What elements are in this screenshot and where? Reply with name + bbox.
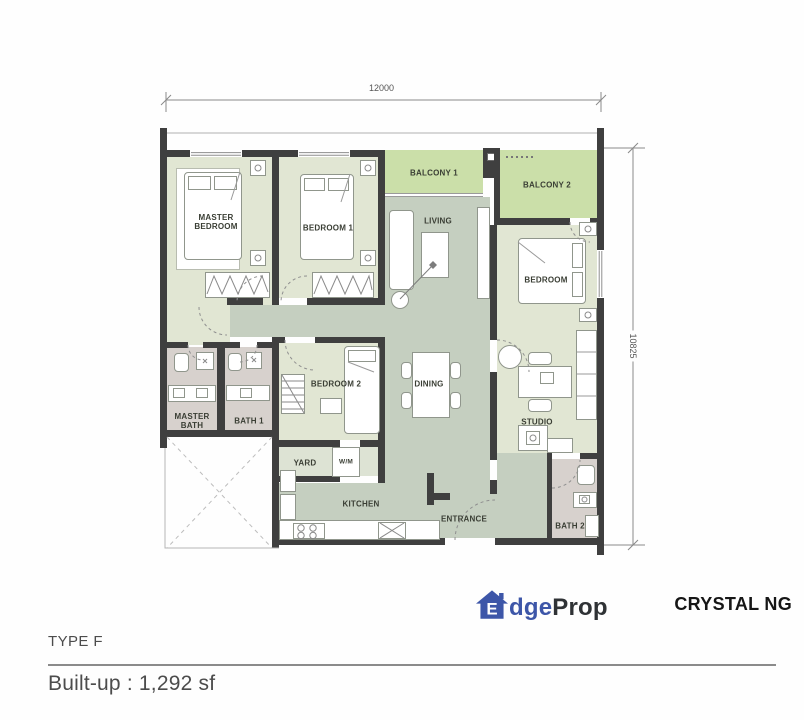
logo-text-prop: Prop xyxy=(552,596,607,620)
wall-yard-top-b xyxy=(360,440,385,447)
wall-bedroom2-left xyxy=(272,337,279,548)
wall-corridor-lower xyxy=(490,372,497,460)
label-yard: YARD xyxy=(285,458,325,467)
wall-bed1-living xyxy=(378,150,385,305)
label-balcony-1: BALCONY 1 xyxy=(394,168,474,177)
wall-bath-top-1 xyxy=(162,342,188,348)
kitchen-cabinet xyxy=(280,470,296,492)
wall-kitchen-stub-h xyxy=(434,493,450,500)
toilet-bath1 xyxy=(228,353,242,371)
wall-outer-right xyxy=(597,128,604,555)
edgeprop-logo-icon: E xyxy=(476,590,508,620)
wall-master-bottom xyxy=(227,298,263,305)
studio-chair xyxy=(528,399,552,412)
logo-text-edge: dge xyxy=(509,596,552,620)
room-entry-corridor xyxy=(497,453,547,538)
nightstand xyxy=(250,160,266,176)
wardrobe-bedroom1 xyxy=(312,272,374,298)
wall-bath-divider xyxy=(217,347,225,435)
shower-bath1 xyxy=(246,352,262,369)
dining-chair xyxy=(401,362,412,379)
label-bath-1: BATH 1 xyxy=(229,416,269,425)
pillow xyxy=(304,178,325,191)
pillow xyxy=(188,176,211,190)
studio-closet xyxy=(576,330,597,420)
dining-chair xyxy=(450,362,461,379)
basin xyxy=(579,495,590,504)
agent-name: CRYSTAL NG xyxy=(620,594,792,615)
stove xyxy=(293,523,325,539)
nightstand xyxy=(579,222,597,236)
studio-monitor xyxy=(540,372,554,384)
fridge xyxy=(280,494,296,520)
wall-bath-bottom xyxy=(162,430,272,437)
coffee-table xyxy=(421,232,449,278)
wall-bedroom2-top-a xyxy=(279,337,285,343)
wall-yard-top-a xyxy=(279,440,340,447)
edgeprop-logo: E dgeProp xyxy=(476,590,608,620)
dining-chair xyxy=(450,392,461,409)
wall-bath-top-3 xyxy=(257,342,272,348)
toilet-master-bath xyxy=(174,353,189,372)
wall-outer-left xyxy=(160,128,167,448)
basin xyxy=(240,388,252,398)
window-master xyxy=(190,150,242,157)
pillow xyxy=(348,350,376,362)
dimension-height: 10825 xyxy=(628,330,638,361)
dining-chair xyxy=(401,392,412,409)
label-living: LIVING xyxy=(408,216,468,225)
pillow xyxy=(214,176,237,190)
label-master-bath: MASTER BATH xyxy=(170,412,214,430)
wardrobe-master xyxy=(205,272,270,298)
label-kitchen: KITCHEN xyxy=(331,499,391,508)
toilet-bath2 xyxy=(577,465,595,485)
label-bath-2: BATH 2 xyxy=(550,521,590,530)
table-bedroom2 xyxy=(320,398,342,414)
wall-corridor-upper xyxy=(490,225,497,340)
kitchen-sink xyxy=(378,522,406,539)
room-hallway xyxy=(230,305,385,337)
pillow xyxy=(328,178,349,191)
footer-divider xyxy=(48,664,776,666)
wall-master-bed1-divider xyxy=(272,157,279,305)
wall-kitchen-stub-v xyxy=(427,473,434,505)
dimension-width: 12000 xyxy=(366,83,397,93)
nightstand xyxy=(360,160,376,176)
label-washing-machine: W/M xyxy=(332,458,360,465)
nightstand xyxy=(579,308,597,322)
label-balcony-2: BALCONY 2 xyxy=(507,180,587,189)
wall-balcony2-bottom xyxy=(494,218,570,225)
wall-bath2-top-b xyxy=(580,453,604,459)
nightstand xyxy=(360,250,376,266)
label-bedroom-1: BEDROOM 1 xyxy=(288,223,368,232)
label-bedroom-2: BEDROOM 2 xyxy=(296,379,376,388)
studio-chair xyxy=(528,352,552,365)
side-table-round xyxy=(391,291,409,309)
wall-bed1-bottom xyxy=(307,298,385,305)
label-master-bedroom: MASTER BEDROOM xyxy=(184,213,248,231)
nightstand xyxy=(250,250,266,266)
counter-studio xyxy=(547,438,573,453)
floorplan-page: MASTER BEDROOM BEDROOM 1 BALCONY 1 BALCO… xyxy=(0,0,804,720)
basin xyxy=(196,388,208,398)
label-entrance: ENTRANCE xyxy=(429,514,499,523)
wall-bedroom2-top-b xyxy=(315,337,385,343)
shower-master-bath xyxy=(196,352,214,370)
pillow xyxy=(572,243,583,268)
window-bedroom-right xyxy=(597,250,604,298)
label-bedroom: BEDROOM xyxy=(511,275,581,284)
wall-entry-stub xyxy=(490,480,497,494)
room-master-passage xyxy=(167,305,230,345)
wall-bath2-top-a xyxy=(547,453,552,459)
label-dining: DINING xyxy=(399,379,459,388)
wall-balcony2-left xyxy=(494,150,500,225)
builtup-label: Built-up : 1,292 sf xyxy=(48,672,215,696)
studio-basin-bowl xyxy=(526,431,540,445)
tv-console xyxy=(477,207,490,299)
wall-bottom-right xyxy=(495,538,604,545)
logo-letter: E xyxy=(486,599,497,618)
unit-type-label: TYPE F xyxy=(48,633,103,650)
label-studio: STUDIO xyxy=(507,417,567,426)
window-bedroom1 xyxy=(298,150,350,157)
basin xyxy=(173,388,185,398)
